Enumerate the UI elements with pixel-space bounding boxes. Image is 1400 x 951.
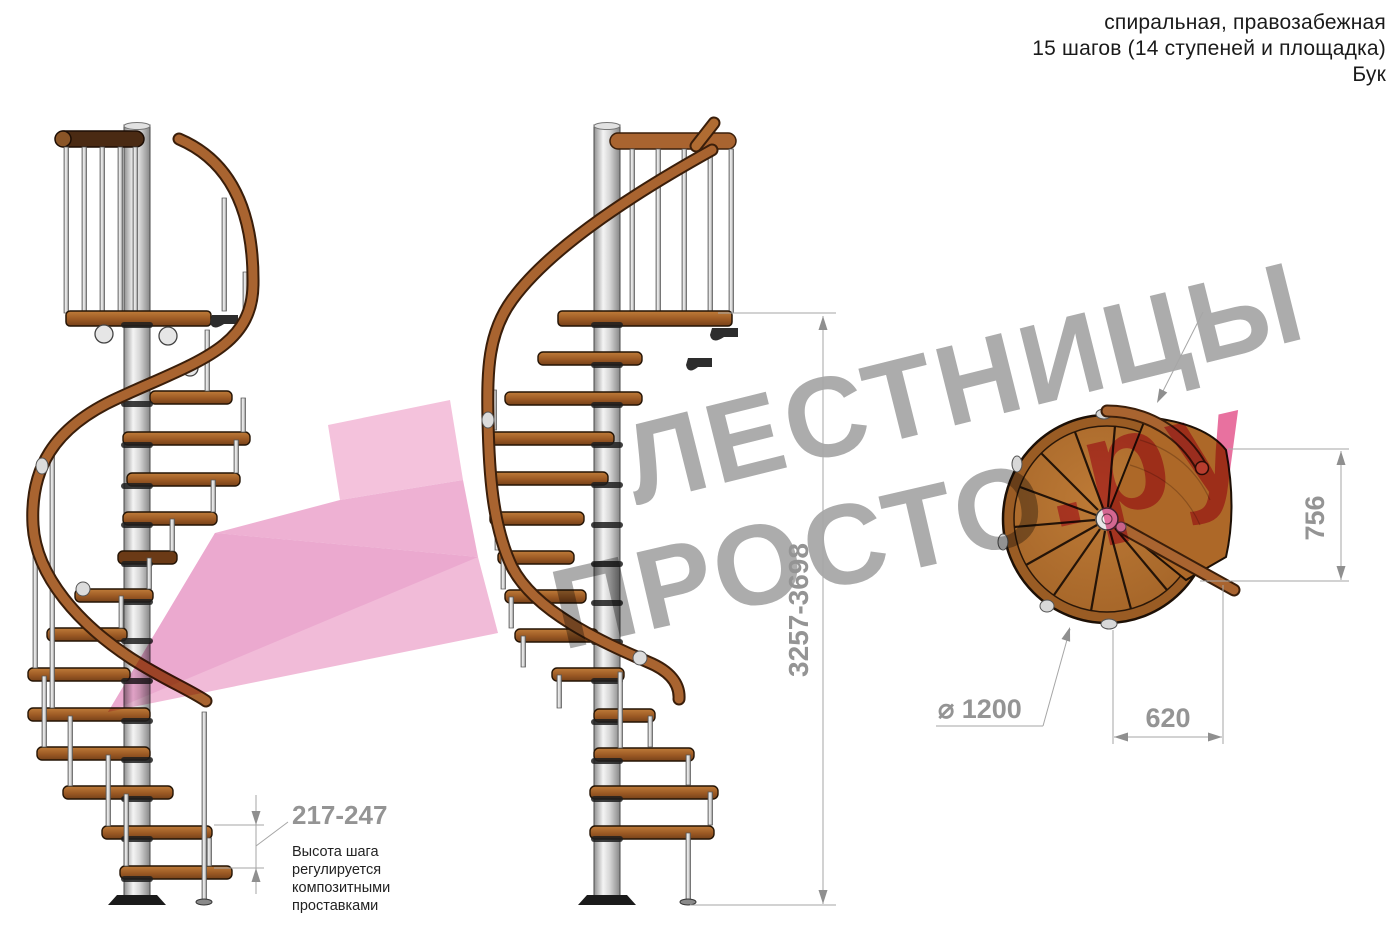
platform-width-label: 620: [1145, 703, 1190, 733]
diameter-label: ⌀ 1200: [938, 694, 1022, 724]
left-staircase-side-view: [28, 123, 253, 906]
landing-platform: [558, 311, 732, 326]
step-height-label: 217-247: [292, 800, 387, 830]
note-line-1: Высота шага: [292, 844, 379, 860]
dimension-diameter: ⌀ 1200: [936, 627, 1070, 726]
platform-depth-label: 756: [1300, 495, 1330, 540]
pole-base: [108, 895, 166, 905]
total-height-label: 3257-3698: [783, 543, 814, 677]
dimension-step-height: 217-247 Высота шага регулируется компози…: [214, 795, 390, 914]
step-height-note: Высота шага регулируется композитными пр…: [292, 844, 390, 914]
drawing-canvas: спиральная, правозабежная 15 шагов (14 с…: [0, 0, 1400, 951]
pole-base: [578, 895, 636, 905]
note-line-3: композитными: [292, 880, 390, 896]
note-line-2: регулируется: [292, 862, 381, 878]
staircase-drawing: ЛЕСТНИЦЫ ПРОСТО.ру 3257-3698 756: [0, 0, 1400, 951]
note-line-4: проставками: [292, 898, 378, 914]
